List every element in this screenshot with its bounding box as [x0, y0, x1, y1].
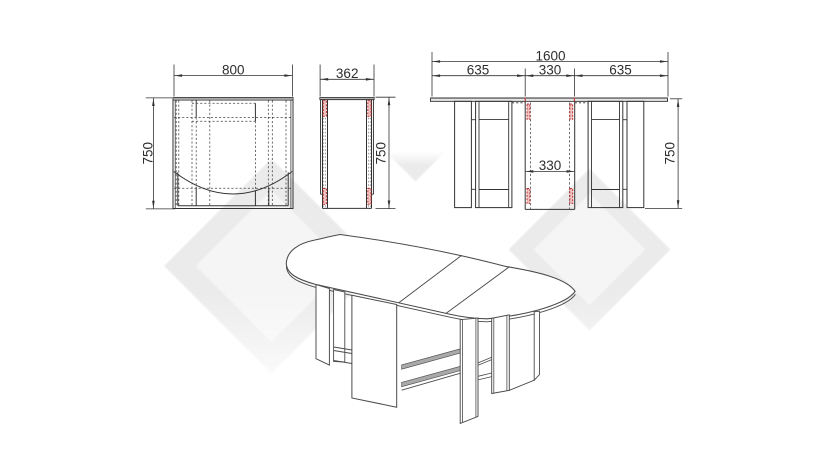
svg-text:635: 635 — [609, 63, 632, 78]
svg-text:750: 750 — [663, 142, 678, 165]
svg-text:330: 330 — [539, 63, 562, 78]
svg-text:330: 330 — [539, 158, 562, 173]
svg-text:800: 800 — [222, 63, 245, 78]
svg-text:1600: 1600 — [535, 48, 565, 63]
svg-text:362: 362 — [336, 66, 359, 81]
svg-text:635: 635 — [467, 63, 490, 78]
svg-text:750: 750 — [374, 142, 389, 165]
svg-text:750: 750 — [140, 142, 155, 165]
